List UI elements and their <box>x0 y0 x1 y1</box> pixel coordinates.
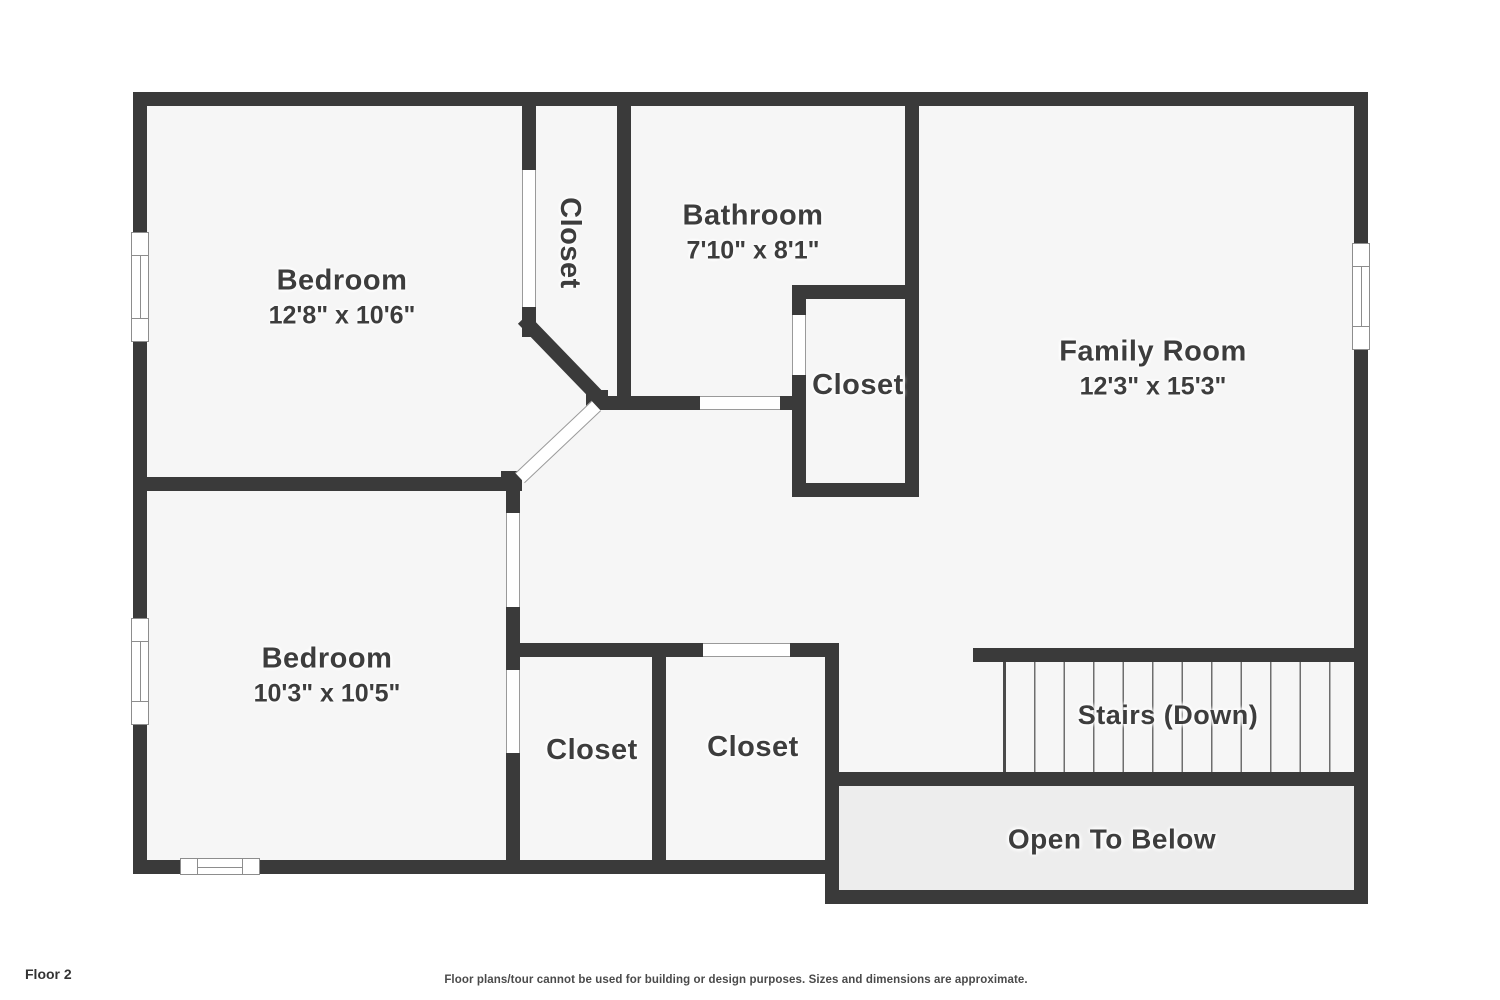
wall-bath-closet-left-upper <box>792 285 806 315</box>
window-frame-line <box>1353 326 1369 327</box>
wall-bedroom2-right-b <box>506 607 520 670</box>
wall-bedroom2-right-c <box>506 753 520 860</box>
door-closet-b2 <box>703 643 790 657</box>
window-family-room-right <box>1352 243 1370 350</box>
label-bedroom1: Bedroom 12'8" x 10'6" <box>269 262 416 332</box>
wall-closets-divider <box>652 657 666 860</box>
wall-bath-closet-top <box>792 285 919 299</box>
window-pane-line <box>140 255 141 319</box>
window-frame-line <box>132 641 148 642</box>
room-name: Bedroom <box>269 262 416 298</box>
label-bathroom: Bathroom 7'10" x 8'1" <box>683 197 824 267</box>
wall-closets-top-right <box>790 643 839 657</box>
wall-open-below-left <box>825 643 839 904</box>
room-name: Bedroom <box>254 640 401 676</box>
wall-bath-closet-left-lower <box>792 375 806 497</box>
room-name: Closet <box>812 367 904 403</box>
label-stairs: Stairs (Down) <box>1078 699 1259 733</box>
floor-plan-page: Bedroom 12'8" x 10'6" Closet Bathroom 7'… <box>0 0 1500 1000</box>
room-dimensions: 10'3" x 10'5" <box>254 679 401 710</box>
wall-bath-closet-bottom <box>792 483 919 497</box>
window-pane-line <box>1361 266 1362 327</box>
room-name: Family Room <box>1059 333 1247 369</box>
door-bath-closet <box>792 315 806 375</box>
wall-bedrooms-divider <box>133 477 520 491</box>
label-open-to-below: Open To Below <box>1008 822 1216 857</box>
window-bedroom2-bottom <box>180 858 260 875</box>
door-closet-top <box>522 170 536 307</box>
window-bedroom2-left <box>131 618 149 725</box>
wall-closets-top-left <box>506 643 703 657</box>
wall-open-below-bottom <box>825 890 1368 904</box>
door-closet-b1 <box>506 670 520 753</box>
window-bedroom1-left <box>131 232 149 342</box>
room-name: Open To Below <box>1008 822 1216 857</box>
door-bathroom <box>700 396 780 410</box>
label-closet-bath: Closet <box>812 367 904 403</box>
room-dimensions: 7'10" x 8'1" <box>683 236 824 267</box>
wall-outer-top <box>133 92 1368 106</box>
label-closet-top: Closet <box>552 197 588 289</box>
room-name: Closet <box>707 729 799 765</box>
wall-stairs-open-below-divider <box>839 772 1368 786</box>
window-frame-line <box>242 859 243 874</box>
wall-bathroom-left <box>617 92 631 410</box>
disclaimer-text: Floor plans/tour cannot be used for buil… <box>0 974 1472 986</box>
label-closet-b1: Closet <box>546 732 638 768</box>
label-family-room: Family Room 12'3" x 15'3" <box>1059 333 1247 403</box>
room-name: Closet <box>552 197 588 289</box>
window-frame-line <box>197 859 198 874</box>
wall-bedroom1-closet-upper <box>522 92 536 170</box>
room-name: Stairs (Down) <box>1078 699 1259 733</box>
wall-stairs-top <box>973 648 1354 662</box>
label-bedroom2: Bedroom 10'3" x 10'5" <box>254 640 401 710</box>
room-name: Closet <box>546 732 638 768</box>
door-bedroom2 <box>506 513 520 607</box>
room-name: Bathroom <box>683 197 824 233</box>
room-dimensions: 12'3" x 15'3" <box>1059 372 1247 403</box>
window-frame-line <box>132 318 148 319</box>
window-frame-line <box>1353 266 1369 267</box>
window-pane-line <box>197 867 243 868</box>
wall-family-room-left <box>905 92 919 497</box>
label-closet-b2: Closet <box>707 729 799 765</box>
window-frame-line <box>132 255 148 256</box>
window-frame-line <box>132 701 148 702</box>
room-dimensions: 12'8" x 10'6" <box>269 301 416 332</box>
window-pane-line <box>140 641 141 702</box>
